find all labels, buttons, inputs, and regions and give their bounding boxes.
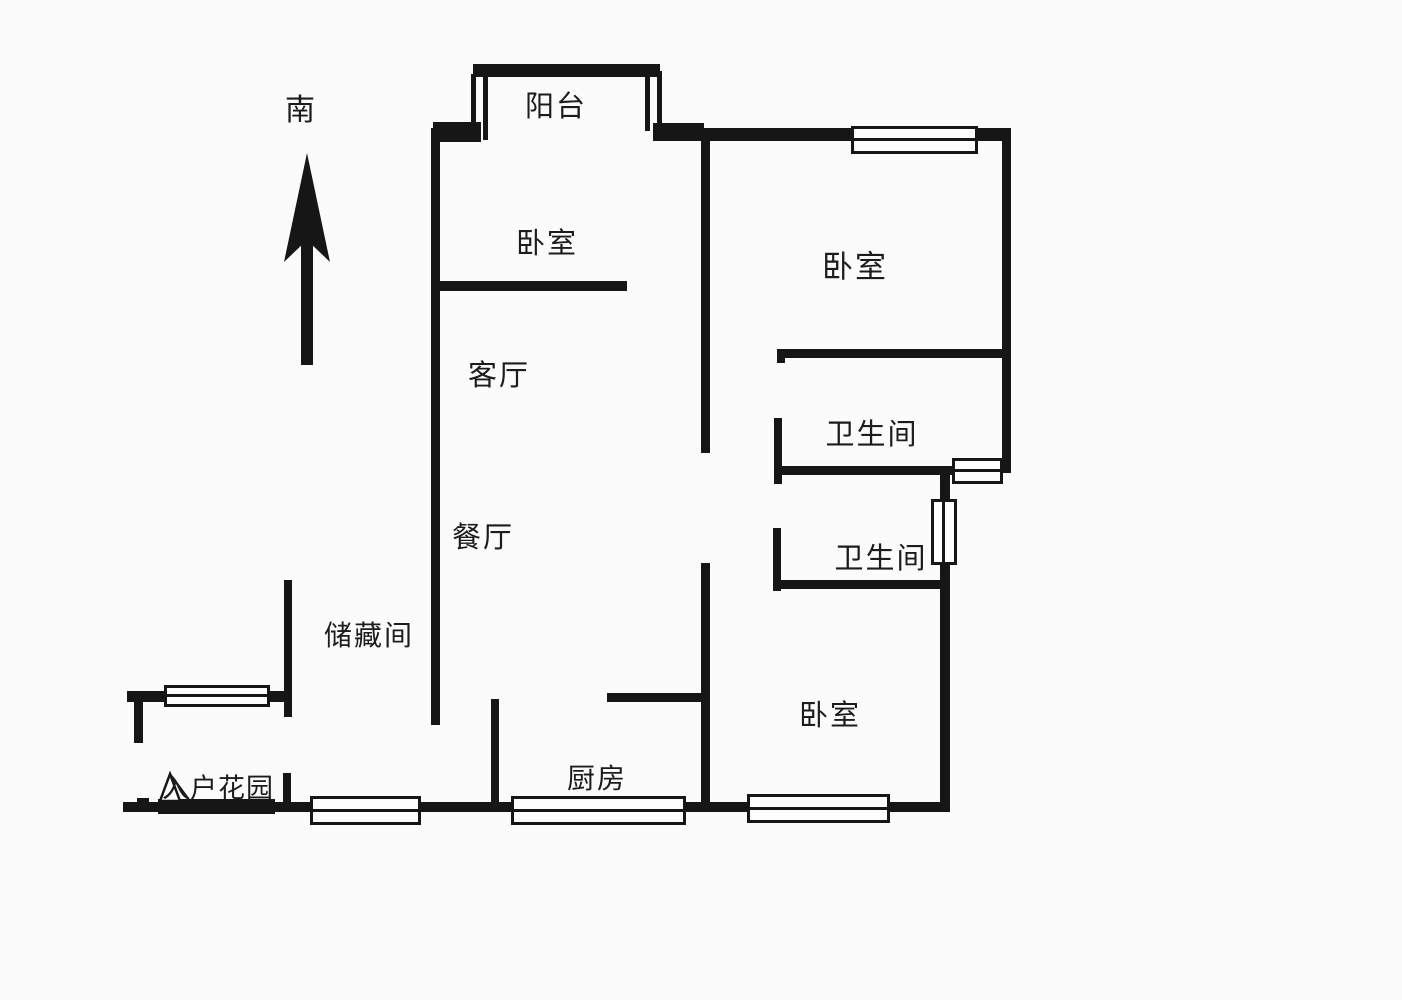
window-pane-line	[513, 809, 684, 812]
window-pane-line	[312, 809, 419, 812]
room-label-balcony: 阳台	[525, 83, 587, 125]
compass-south-label: 南	[285, 85, 317, 129]
room-label-bedroom-top-left: 卧室	[516, 220, 578, 262]
wall-balcony-left-inner	[483, 74, 488, 140]
window-kitchen-window	[511, 796, 686, 825]
room-label-bedroom-top-right: 卧室	[822, 242, 888, 287]
room-label-storage: 储藏间	[324, 614, 414, 654]
window-pane-line	[853, 138, 976, 141]
wall-bedroom2-partial	[779, 349, 1009, 358]
wall-kitchen-top-wall	[607, 693, 707, 702]
wall-kitchen-left-wall	[491, 699, 499, 809]
wall-entrance-left-stub	[134, 697, 143, 743]
wall-bedroom2-partial-tick	[777, 349, 785, 363]
room-label-bathroom-upper: 卫生间	[825, 411, 918, 453]
window-bath-side-window	[931, 499, 957, 565]
wall-bath2-wall	[779, 580, 943, 589]
wall-right-wall-upper	[1002, 128, 1011, 473]
window-right-step-window	[952, 458, 1003, 484]
wall-entrance-right-stub	[283, 773, 291, 810]
window-bedroom1-top-window	[851, 126, 978, 154]
window-entrance-side-window	[164, 685, 270, 707]
room-label-bedroom-bottom: 卧室	[799, 692, 861, 734]
wall-left-wall-main	[431, 128, 440, 725]
wall-balcony-right-inner	[645, 71, 650, 131]
floor-plan: 南 阳台 卧室 卧室 客厅 餐厅 卫生间 卫生间 储藏间 入户花园 厨房 卧室	[0, 0, 1402, 1000]
wall-top-wall-left	[433, 122, 481, 142]
window-pane-line	[954, 469, 1001, 472]
wall-bedroom1-divider	[435, 281, 627, 291]
wall-bottom-left-tick	[137, 798, 149, 804]
wall-central-wall-upper	[701, 137, 710, 453]
room-label-entry-garden: 入户花园	[162, 767, 274, 806]
room-label-bathroom-lower: 卫生间	[834, 535, 927, 577]
wall-bath1-wall	[779, 466, 955, 475]
wall-balcony-top	[473, 64, 660, 77]
window-bedroom3-window	[747, 794, 890, 823]
room-label-kitchen: 厨房	[567, 757, 627, 797]
room-label-dining-room: 餐厅	[452, 514, 514, 556]
window-pane-line	[749, 807, 888, 810]
wall-balcony-right-outer	[657, 71, 662, 131]
north-arrow-icon	[270, 145, 346, 375]
room-label-living-room: 客厅	[468, 352, 530, 394]
window-entrance-bottom-window	[310, 796, 421, 825]
wall-top-wall-mid	[653, 123, 704, 141]
window-pane-line	[166, 694, 268, 697]
wall-central-wall-lower	[701, 563, 710, 810]
window-pane-line	[942, 501, 945, 563]
